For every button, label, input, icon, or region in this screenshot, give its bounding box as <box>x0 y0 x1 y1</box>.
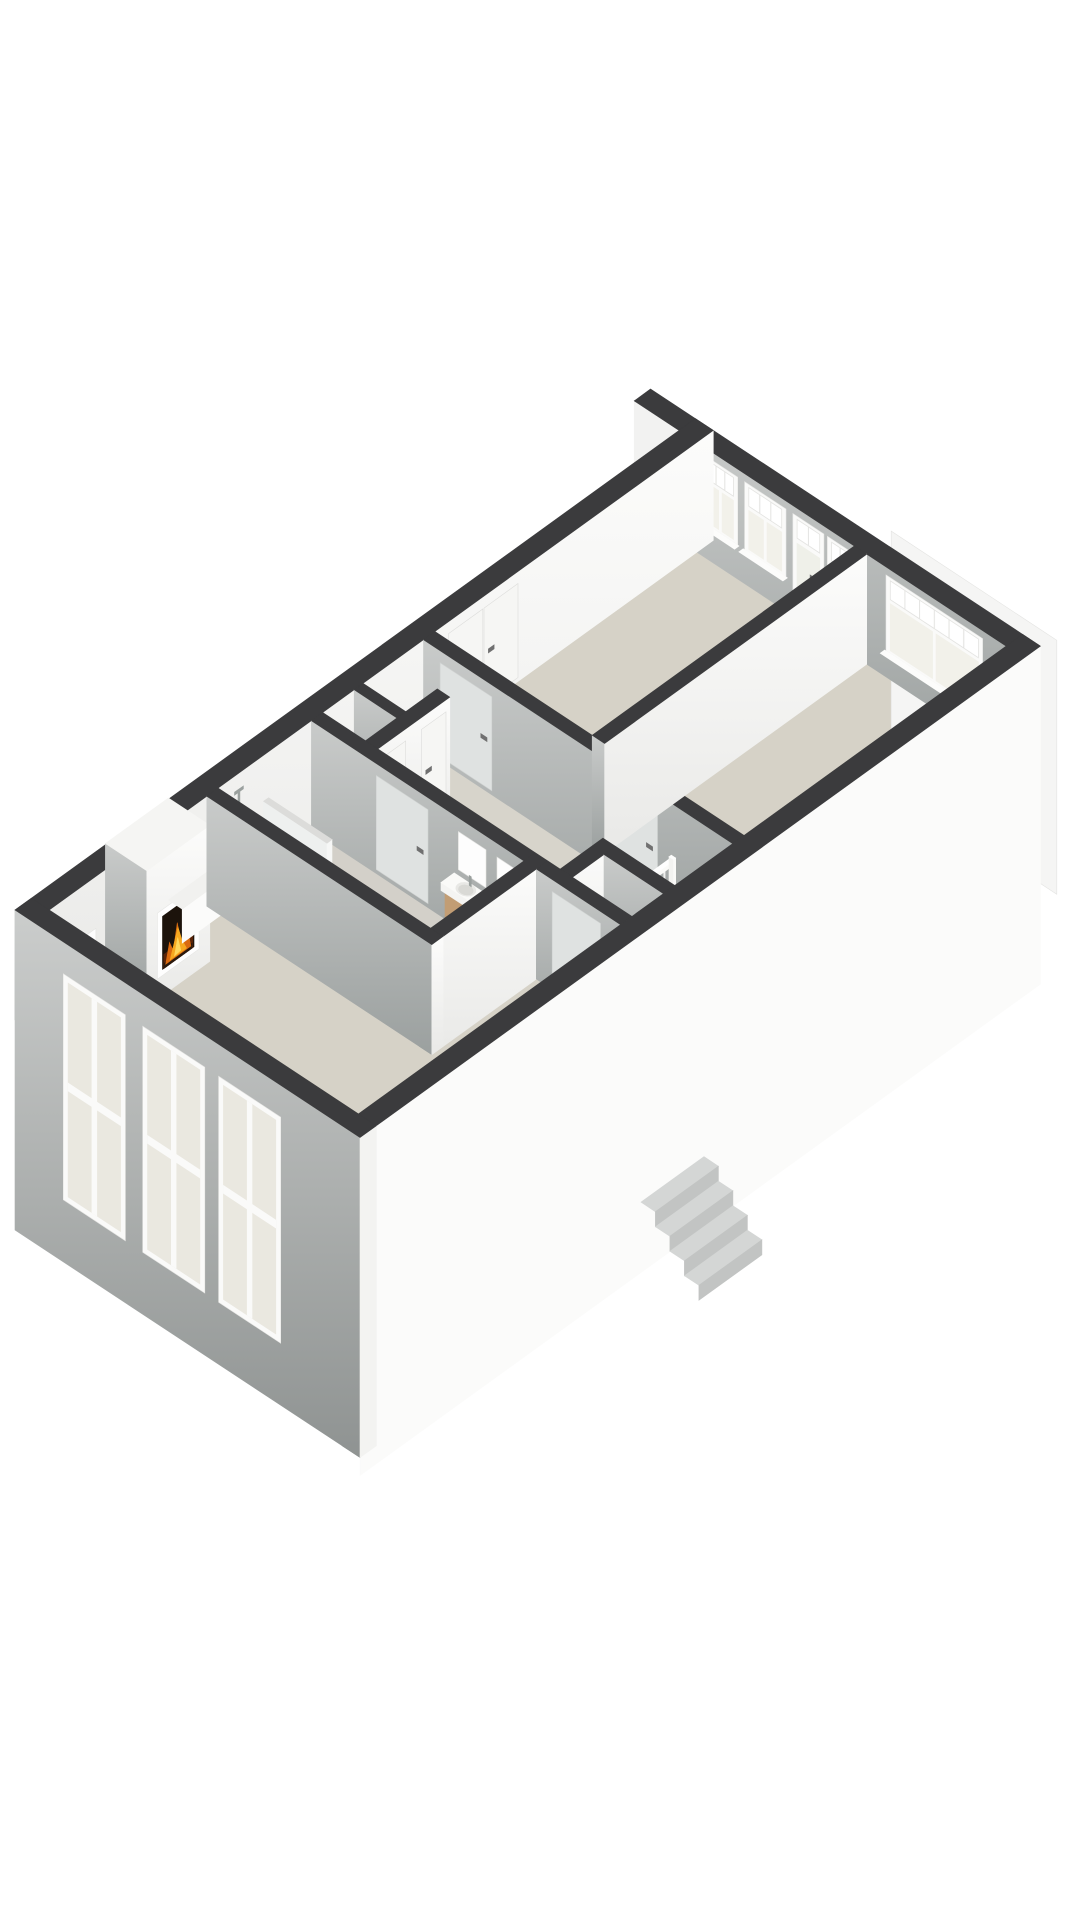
floorplan-page <box>0 0 1080 1920</box>
floorplan-3d-render <box>0 0 1080 1920</box>
